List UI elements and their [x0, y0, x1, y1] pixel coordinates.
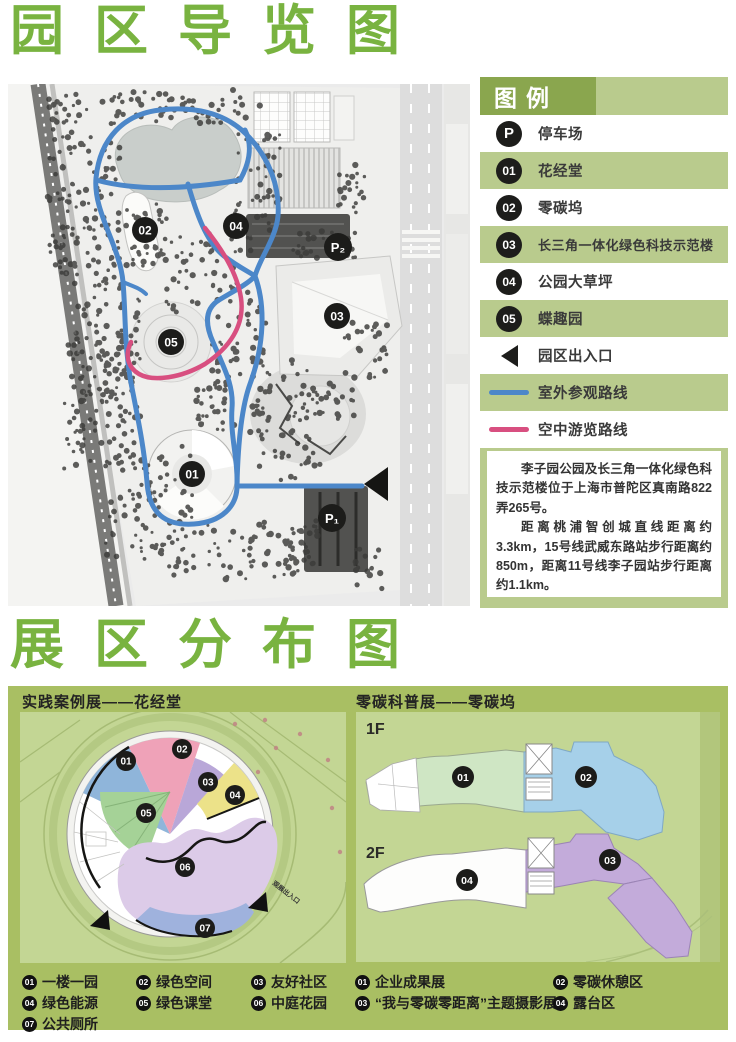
- left-legend-item-03: 03友好社区: [251, 972, 327, 992]
- marker-03-icon: 03: [480, 232, 538, 258]
- marker-p2: P₂: [324, 233, 352, 261]
- east-road: [400, 84, 470, 606]
- flower-hall-svg: 观展出入口 01 02 03 04 05 06 07: [20, 712, 346, 963]
- left-legend-item-02: 02绿色空间: [136, 972, 212, 992]
- legend-row-parking: P 停车场: [480, 115, 728, 152]
- section-title-exhibition: 展区分布图: [10, 618, 430, 672]
- legend-row-aerial-route: 空中游览路线: [480, 411, 728, 448]
- legend-row-outdoor-route: 室外参观路线: [480, 374, 728, 411]
- legend-row-entrance: 园区出入口: [480, 337, 728, 374]
- svg-text:04: 04: [461, 875, 473, 887]
- right-plan-header: 零碳科普展——零碳坞: [356, 691, 516, 712]
- parking-icon: P: [480, 121, 538, 147]
- marker-02-icon: 02: [480, 195, 538, 221]
- marker-03: 03: [198, 772, 218, 792]
- svg-text:02: 02: [138, 224, 152, 238]
- marker-01-icon: 01: [480, 158, 538, 184]
- legend-row-03: 03 长三角一体化绿色科技示范楼: [480, 226, 728, 263]
- right-legend-item-04: 04露台区: [553, 993, 615, 1013]
- legend-header: 图例: [480, 77, 596, 115]
- zero-carbon-svg: 1F 2F: [356, 712, 720, 962]
- svg-text:05: 05: [164, 336, 178, 350]
- floor-label-2f: 2F: [366, 845, 385, 862]
- right-legend-item-02: 02零碳休憩区: [553, 972, 643, 992]
- marker-05: 05: [136, 803, 156, 823]
- entrance-arrow-icon: [480, 345, 538, 367]
- svg-text:03: 03: [202, 778, 214, 789]
- location-paragraph-1: 李子园公园及长三角一体化绿色科技示范楼位于上海市普陀区真南路822弄265号。: [496, 460, 712, 518]
- svg-text:04: 04: [229, 791, 241, 802]
- svg-text:P₁: P₁: [325, 511, 339, 526]
- svg-text:04: 04: [229, 220, 243, 234]
- marker-2f-03: 03: [599, 849, 621, 871]
- legend-row-05: 05 蝶趣园: [480, 300, 728, 337]
- flower-hall-floorplan: 观展出入口 01 02 03 04 05 06 07: [20, 712, 346, 968]
- left-legend-item-06: 06中庭花园: [251, 993, 327, 1013]
- marker-1f-01: 01: [452, 766, 474, 788]
- right-legend-item-03: 03“我与零碳零距离”主题摄影展: [355, 993, 557, 1013]
- svg-text:03: 03: [604, 855, 616, 867]
- location-paragraph-2: 距离桃浦智创城直线距离约3.3km，15号线武威东路站步行距离约850m，距离1…: [496, 518, 712, 596]
- page-title: 园区导览图: [10, 4, 430, 58]
- stair-core-2f: [528, 838, 554, 894]
- zero-carbon-floorplan: 1F 2F: [356, 712, 720, 967]
- legend-panel: 图例 P 停车场 01 花经堂 02 零碳坞 03 长三角一体化绿色科技示范楼 …: [480, 77, 728, 608]
- pink-route-icon: [480, 427, 538, 432]
- legend-row-02: 02 零碳坞: [480, 189, 728, 226]
- svg-text:01: 01: [457, 772, 469, 784]
- svg-text:02: 02: [176, 745, 188, 756]
- marker-02: 02: [132, 217, 158, 243]
- blue-route-icon: [480, 390, 538, 395]
- svg-text:07: 07: [199, 924, 211, 935]
- park-map-svg: 02 04 05 01 03 P₂ P₁: [8, 84, 470, 606]
- left-legend-item-05: 05绿色课堂: [136, 993, 212, 1013]
- marker-01: 01: [116, 751, 136, 771]
- left-legend-item-07: 07公共厕所: [22, 1014, 98, 1034]
- park-overview-map: 02 04 05 01 03 P₂ P₁: [8, 84, 470, 606]
- marker-03: 03: [324, 303, 350, 329]
- svg-text:01: 01: [120, 757, 132, 768]
- marker-06: 06: [175, 857, 195, 877]
- svg-text:P₂: P₂: [331, 240, 346, 255]
- svg-text:01: 01: [185, 468, 199, 482]
- marker-04: 04: [223, 213, 249, 239]
- marker-04: 04: [225, 785, 245, 805]
- exhibition-panel: 实践案例展——花经堂 零碳科普展——零碳坞: [8, 686, 728, 1030]
- marker-07: 07: [195, 918, 215, 938]
- marker-p1: P₁: [318, 504, 346, 532]
- marker-01: 01: [179, 461, 205, 487]
- svg-text:03: 03: [330, 310, 344, 324]
- marker-02: 02: [172, 739, 192, 759]
- poster-page: 园区导览图 展区分布图: [0, 0, 736, 1042]
- left-legend-item-04: 04绿色能源: [22, 993, 98, 1013]
- left-legend-item-01: 01一楼一园: [22, 972, 98, 992]
- svg-text:06: 06: [179, 863, 191, 874]
- legend-row-04: 04 公园大草坪: [480, 263, 728, 300]
- marker-05-icon: 05: [480, 306, 538, 332]
- location-description: 李子园公园及长三角一体化绿色科技示范楼位于上海市普陀区真南路822弄265号。 …: [487, 451, 721, 597]
- svg-text:05: 05: [140, 809, 152, 820]
- svg-text:02: 02: [580, 772, 592, 784]
- marker-04-icon: 04: [480, 269, 538, 295]
- stair-core-1f: [526, 744, 552, 800]
- left-plan-header: 实践案例展——花经堂: [22, 691, 182, 712]
- floor-label-1f: 1F: [366, 721, 385, 738]
- marker-05: 05: [158, 329, 184, 355]
- marker-2f-04: 04: [456, 869, 478, 891]
- marker-1f-02: 02: [575, 766, 597, 788]
- legend-row-01: 01 花经堂: [480, 152, 728, 189]
- right-legend-item-01: 01企业成果展: [355, 972, 445, 992]
